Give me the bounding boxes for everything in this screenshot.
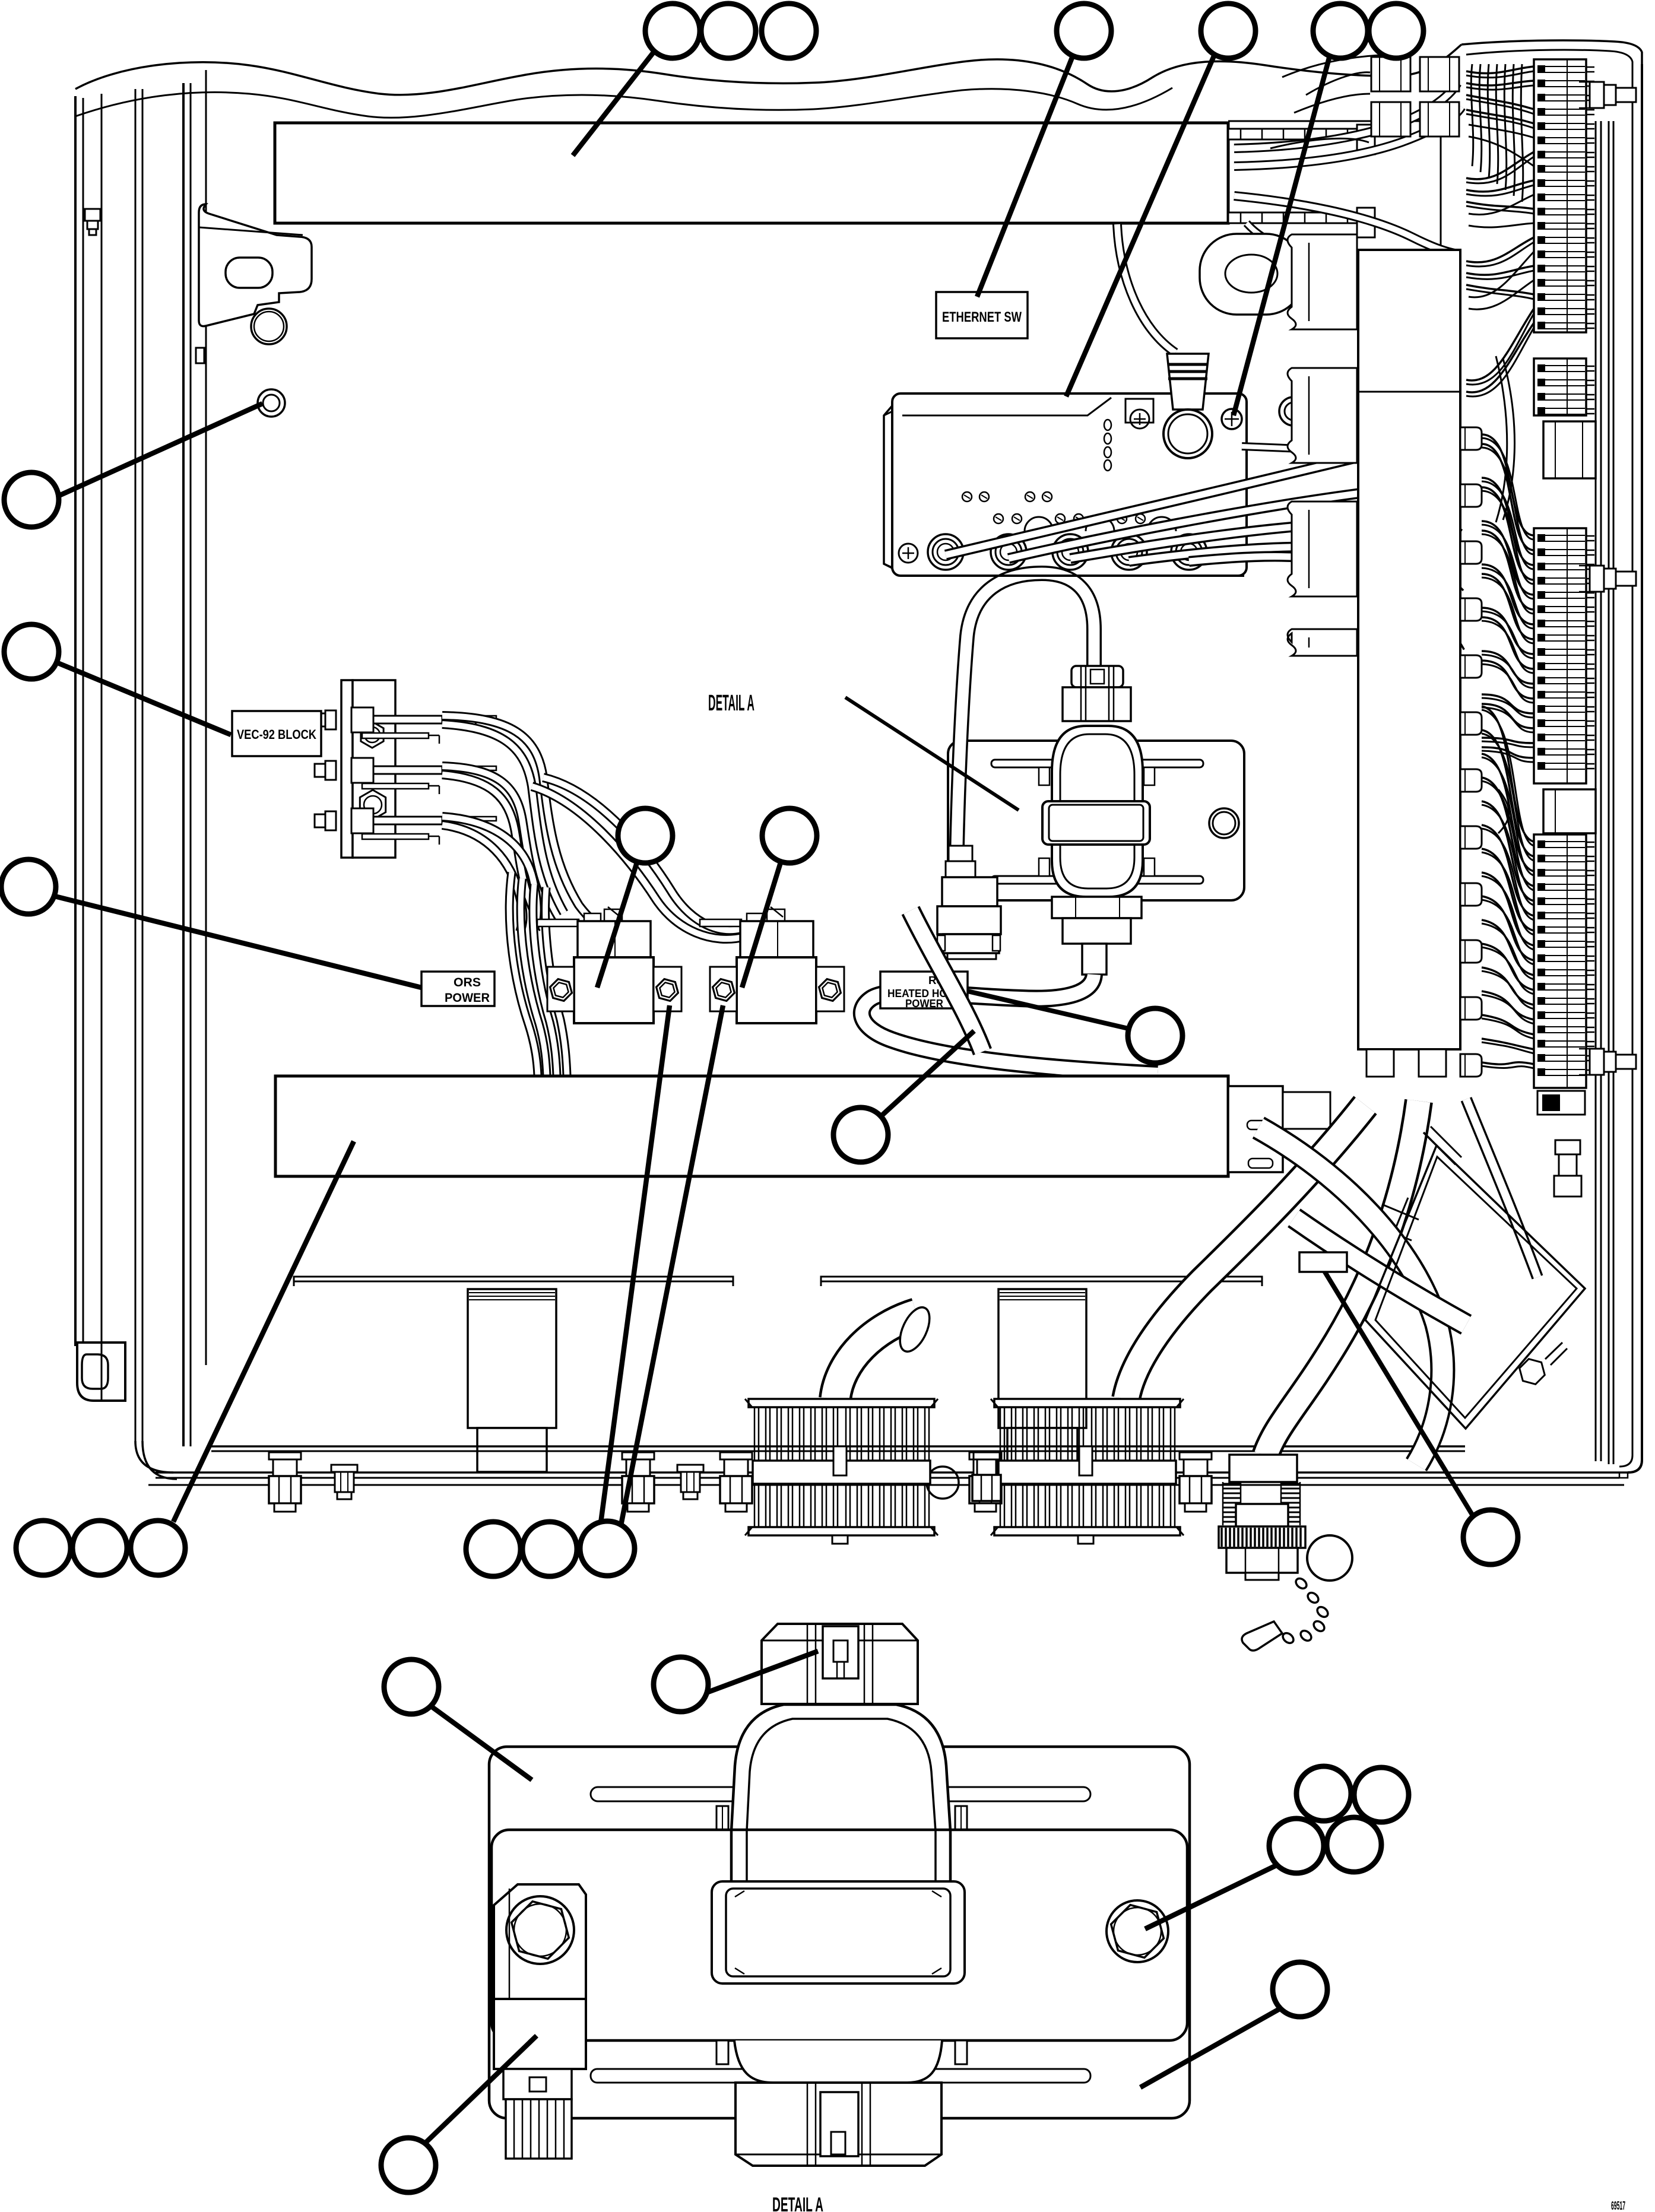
svg-text:ORS: ORS bbox=[454, 976, 481, 989]
svg-text:POWER: POWER bbox=[905, 998, 943, 1010]
svg-text:69517: 69517 bbox=[1611, 2200, 1625, 2212]
svg-text:ETHERNET SW: ETHERNET SW bbox=[942, 309, 1022, 325]
svg-text:DETAIL A: DETAIL A bbox=[708, 691, 754, 716]
svg-text:VEC-92 BLOCK: VEC-92 BLOCK bbox=[237, 727, 316, 742]
svg-text:DETAIL A: DETAIL A bbox=[772, 2194, 823, 2212]
svg-text:POWER: POWER bbox=[445, 991, 490, 1005]
